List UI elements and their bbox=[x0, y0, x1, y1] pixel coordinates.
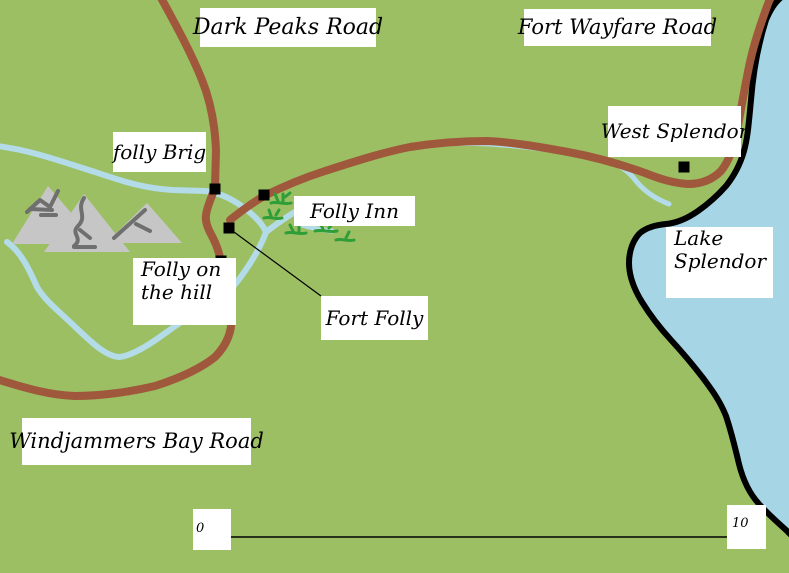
marker-fort-folly bbox=[224, 223, 235, 234]
label-folly-inn: Folly Inn bbox=[294, 196, 415, 226]
label-lake-splendor-line1: Lake bbox=[674, 227, 723, 250]
marker-west-splendor bbox=[679, 162, 690, 173]
label-lake-splendor: Lake Splendor bbox=[666, 227, 773, 298]
label-folly-brig: folly Brig bbox=[113, 132, 206, 172]
label-dark-peaks-road: Dark Peaks Road bbox=[200, 8, 376, 47]
label-west-splendor: West Splendor bbox=[608, 106, 741, 157]
hand-drawn-map: Dark Peaks Road Fort Wayfare Road West S… bbox=[0, 0, 789, 573]
marker-folly-brig bbox=[210, 184, 221, 195]
scale-start-label: 0 bbox=[193, 509, 231, 550]
marker-folly-inn bbox=[259, 190, 270, 201]
scale-end-label: 10 bbox=[727, 505, 766, 549]
label-fort-folly: Fort Folly bbox=[321, 296, 428, 340]
label-folly-on-the-hill: Folly on the hill bbox=[133, 258, 236, 325]
label-fort-wayfare-road: Fort Wayfare Road bbox=[524, 9, 711, 46]
label-lake-splendor-line2: Splendor bbox=[674, 250, 766, 273]
label-folly-on-the-hill-line1: Folly on bbox=[141, 258, 221, 281]
label-windjammers-bay-road: Windjammers Bay Road bbox=[22, 418, 251, 465]
label-folly-on-the-hill-line2: the hill bbox=[141, 281, 212, 304]
